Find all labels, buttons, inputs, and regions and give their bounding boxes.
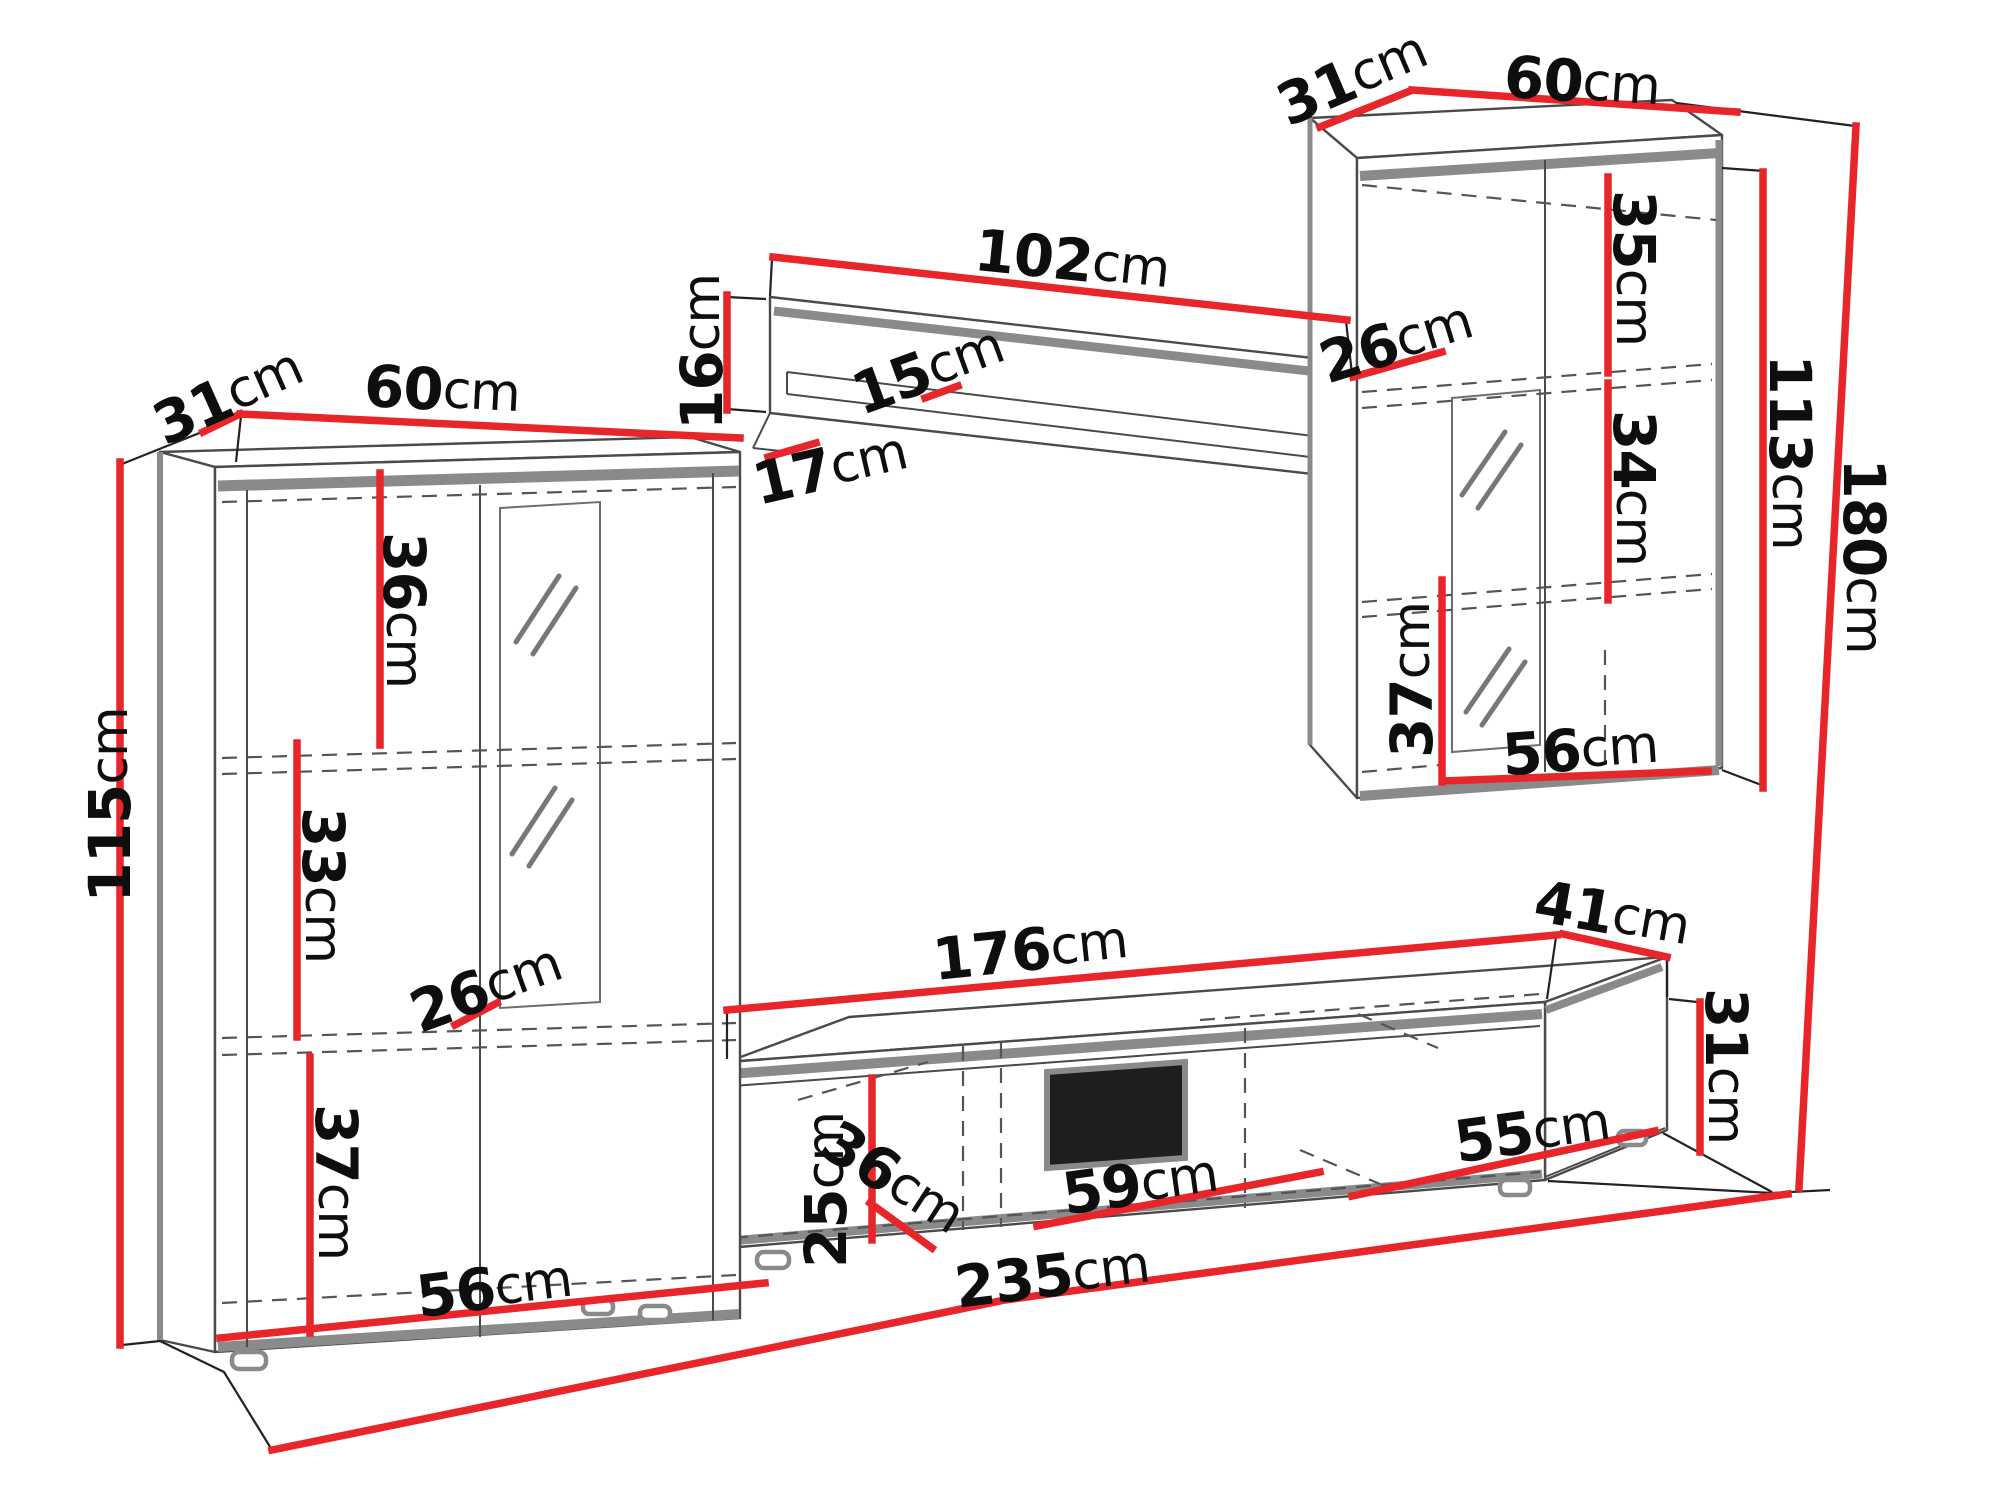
dim-label-height: 31cm: [1692, 988, 1760, 1144]
dim-label-upper-section: 36cm: [370, 532, 438, 688]
furniture-dimension-diagram: 31cm 60cm 115cm 36cm 33cm 26cm 37cm 56cm…: [0, 0, 2000, 1500]
dim-label-depth: 31cm: [143, 333, 313, 459]
dim-label-upper-section: 35cm: [1600, 190, 1668, 346]
dim-label-lower-section: 37cm: [1378, 602, 1446, 758]
tv-foot: [640, 1306, 670, 1320]
dim-label-width: 60cm: [1502, 43, 1662, 122]
dim-label-length: 102cm: [971, 216, 1172, 304]
diagram-canvas: 31cm 60cm 115cm 36cm 33cm 26cm 37cm 56cm…: [0, 0, 2000, 1500]
left-cabinet-structure: [160, 437, 740, 1352]
dim-label-height: 115cm: [76, 707, 144, 902]
dim-label-total-width: 235cm: [951, 1230, 1153, 1321]
dim-label-middle-section: 33cm: [289, 807, 357, 963]
leftcab-side-face: [160, 452, 215, 1352]
dim-label-side-depth: 17cm: [746, 417, 913, 518]
dim-label-top-length: 176cm: [929, 906, 1130, 994]
hanging-side-face: [1310, 118, 1357, 798]
cabinet-foot: [232, 1352, 266, 1369]
tv-foot: [1500, 1180, 1530, 1195]
dim-label-width: 60cm: [362, 352, 521, 428]
dim-label-total-height: 180cm: [1830, 458, 1898, 653]
dim-label-height: 16cm: [668, 274, 736, 430]
dim-line-total-height: [1799, 126, 1856, 1188]
tv-foot: [757, 1252, 789, 1268]
dim-label-body-height: 113cm: [1756, 354, 1824, 549]
dim-label-lower-section: 37cm: [302, 1104, 370, 1260]
dim-label-middle-section: 34cm: [1600, 410, 1668, 566]
